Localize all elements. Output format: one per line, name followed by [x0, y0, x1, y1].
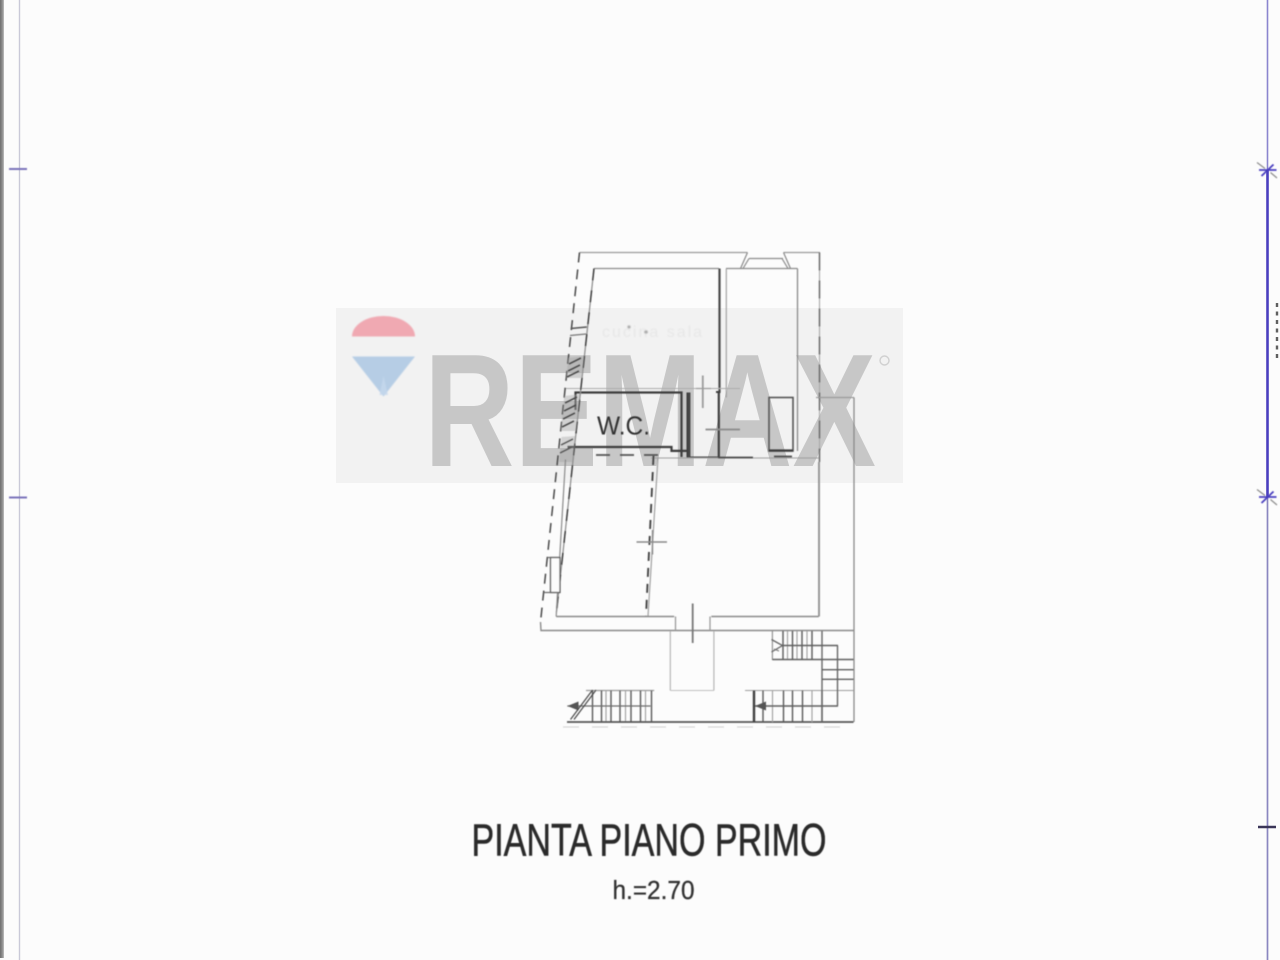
svg-text:PIANTA PIANO PRIMO: PIANTA PIANO PRIMO	[472, 815, 827, 866]
svg-text:h.=2.70: h.=2.70	[613, 877, 695, 905]
svg-text:cucina sala: cucina sala	[602, 324, 704, 341]
svg-text:REMAX: REMAX	[424, 321, 876, 501]
svg-text:W.C.: W.C.	[597, 411, 650, 441]
